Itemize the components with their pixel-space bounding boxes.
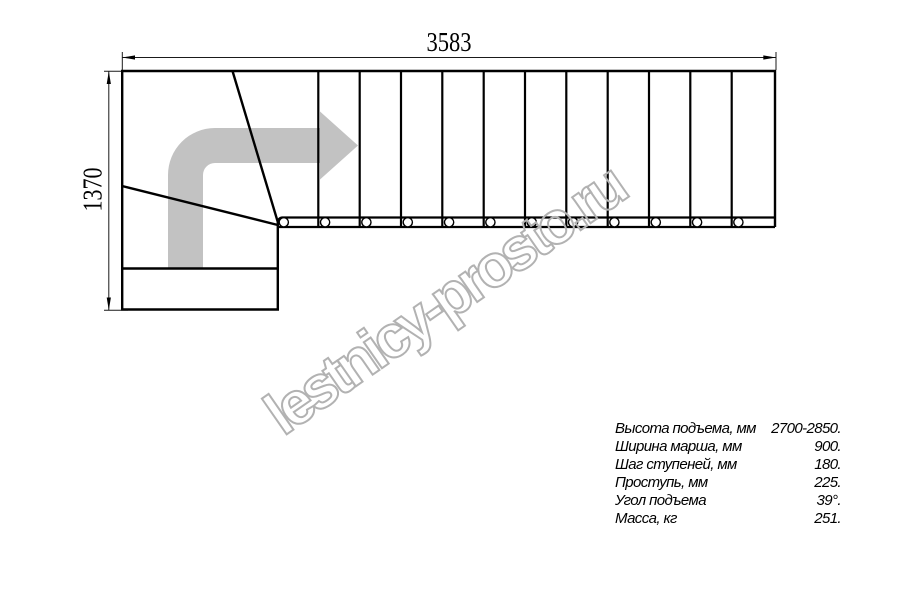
svg-text:Шаг ступеней, мм: Шаг ступеней, мм — [615, 456, 737, 473]
svg-text:3583: 3583 — [427, 27, 472, 57]
svg-text:Масса, кг: Масса, кг — [615, 510, 678, 527]
svg-text:180.: 180. — [814, 456, 841, 473]
svg-text:251.: 251. — [813, 510, 841, 527]
svg-text:Ширина марша, мм: Ширина марша, мм — [615, 438, 742, 455]
svg-text:2700-2850.: 2700-2850. — [770, 420, 841, 437]
svg-text:1370: 1370 — [77, 168, 107, 212]
svg-text:Высота подъема, мм: Высота подъема, мм — [615, 420, 756, 437]
svg-text:Проступь, мм: Проступь, мм — [615, 474, 708, 491]
svg-text:Угол подъема: Угол подъема — [614, 492, 706, 509]
svg-text:225.: 225. — [813, 474, 841, 491]
svg-text:900.: 900. — [814, 438, 841, 455]
svg-text:39°.: 39°. — [817, 492, 841, 509]
